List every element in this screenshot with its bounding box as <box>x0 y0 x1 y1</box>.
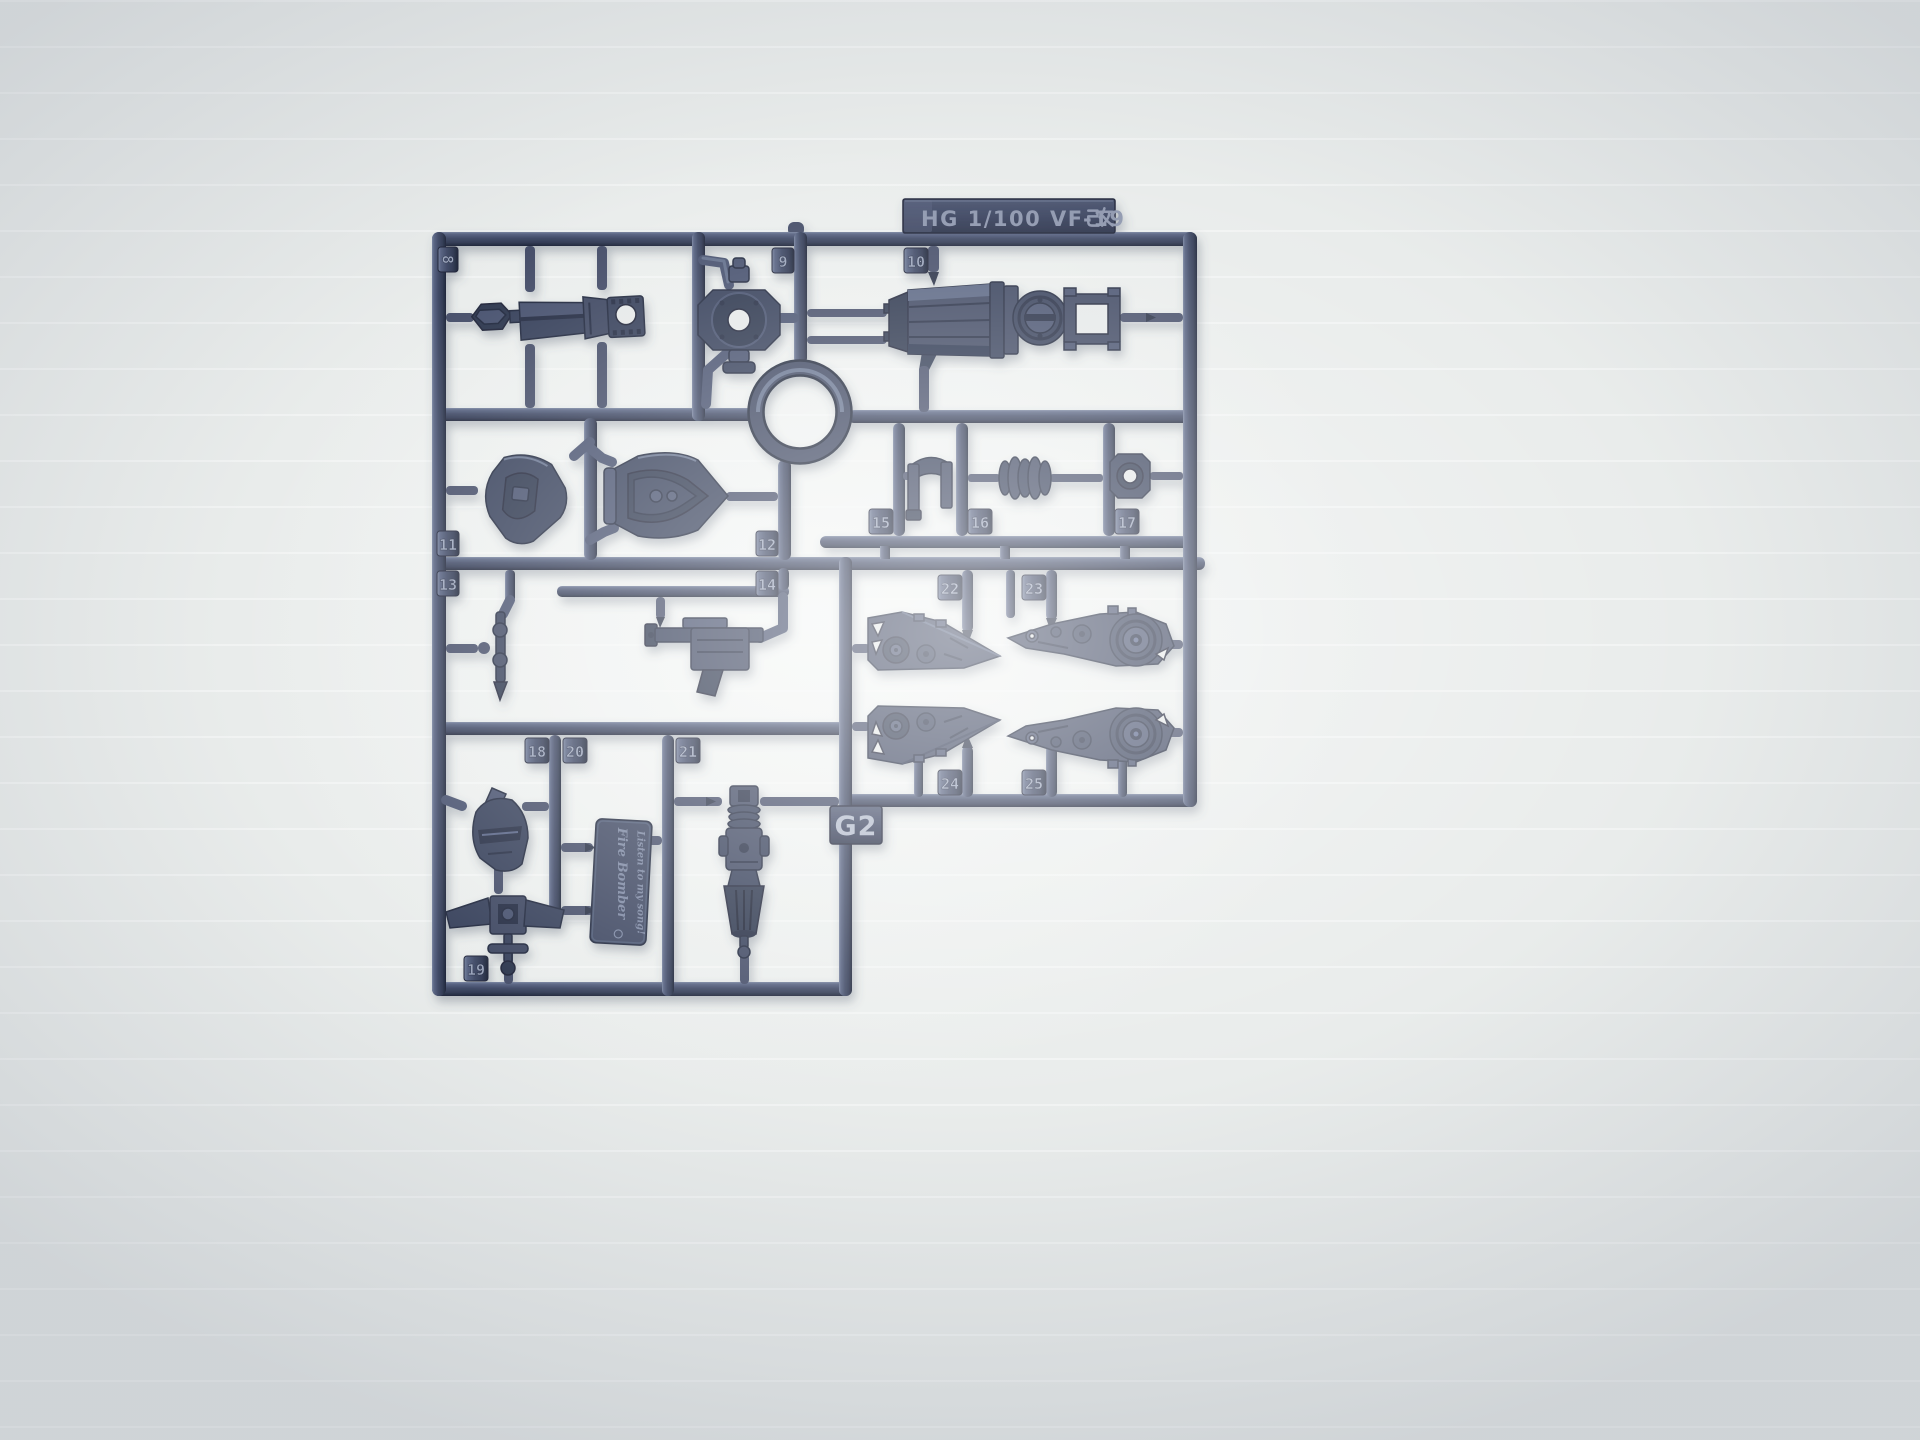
gate-stub <box>807 336 887 344</box>
gate-stub <box>446 644 478 653</box>
part-tag-22: 22 <box>938 575 962 600</box>
svg-text:8: 8 <box>439 255 457 264</box>
title-plate: HG 1/100 VF-19 <box>903 199 1125 233</box>
svg-text:11: 11 <box>439 536 457 554</box>
gate-stub <box>928 246 939 272</box>
gate-stub <box>597 342 607 408</box>
gate-stub <box>919 366 929 412</box>
svg-text:18: 18 <box>528 743 546 761</box>
part-tag-14: 14 <box>756 571 778 596</box>
svg-text:10: 10 <box>907 253 925 271</box>
runner-connector <box>1120 546 1130 559</box>
gate-stub <box>1050 474 1103 482</box>
gate-pin-cap <box>478 642 490 654</box>
part-tag-17: 17 <box>1115 509 1139 534</box>
gate-elbow <box>446 800 462 806</box>
runner-bar-panel-bottom <box>845 794 1197 807</box>
part-tag-8: 8 <box>438 247 458 272</box>
part-tag-10: 10 <box>904 248 928 273</box>
runner-bar-v12 <box>662 735 674 996</box>
svg-text:16: 16 <box>971 514 989 532</box>
svg-text:21: 21 <box>679 743 697 761</box>
svg-text:17: 17 <box>1118 514 1136 532</box>
runner-bar-v3 <box>778 460 791 560</box>
svg-text:20: 20 <box>566 743 584 761</box>
runner-bar-lower-left <box>432 722 852 735</box>
svg-text:22: 22 <box>941 580 959 598</box>
part-tag-20: 20 <box>563 738 587 763</box>
svg-text:15: 15 <box>872 514 890 532</box>
part-tag-9: 9 <box>772 248 794 273</box>
part-tag-19: 19 <box>464 956 488 981</box>
part-tag-13: 13 <box>437 571 459 596</box>
logo-plate-script-line1: Fire Bomber <box>614 827 629 921</box>
part-tag-23: 23 <box>1022 575 1046 600</box>
svg-text:23: 23 <box>1025 580 1043 598</box>
gate-stub <box>522 802 549 811</box>
part-tag-25: 25 <box>1022 770 1046 795</box>
runner-bar-vsup <box>778 568 789 590</box>
runner-code-tag: G2 <box>830 806 882 844</box>
part-tag-15: 15 <box>869 509 893 534</box>
gate-stub <box>525 344 535 408</box>
part-bellows-joint <box>999 457 1051 499</box>
gate-stub <box>726 492 778 501</box>
runner-bar-bottom <box>432 982 852 996</box>
part-tag-12: 12 <box>756 531 778 556</box>
runner-bar-v9 <box>839 557 852 996</box>
svg-text:12: 12 <box>758 536 776 554</box>
gate-stub <box>597 246 607 290</box>
gate-stub <box>807 309 887 317</box>
gate-stub <box>1150 472 1183 480</box>
runner-code-text: G2 <box>835 811 878 842</box>
runner-bar-mid-right <box>848 410 1197 423</box>
part-tag-18: 18 <box>525 738 549 763</box>
runner-bar-v6 <box>893 423 905 536</box>
gate-stub <box>968 474 1000 482</box>
part-ball-pin <box>493 612 507 700</box>
part-logo-plate: Fire Bomber Listen to my song! <box>590 819 652 946</box>
runner-bar-v7 <box>956 423 968 536</box>
runner-bar-left-edge <box>432 232 446 996</box>
runner-connector <box>880 546 890 559</box>
runner-bar-center <box>432 557 1205 570</box>
svg-text:13: 13 <box>439 576 457 594</box>
gate-bar-24 <box>962 746 973 797</box>
part-tag-11: 11 <box>437 531 459 556</box>
gate-stub <box>760 797 839 806</box>
svg-text:9: 9 <box>778 253 787 271</box>
part-tag-24: 24 <box>938 770 962 795</box>
gate-stub <box>656 597 665 619</box>
runner-bar-right-edge <box>1183 232 1197 807</box>
runner-connector <box>1000 546 1010 559</box>
sprue-photo: Fire Bomber Listen to my song! <box>0 0 1920 1440</box>
runner-bar-top <box>432 232 1197 246</box>
svg-text:24: 24 <box>941 775 959 793</box>
part-tag-21: 21 <box>676 738 700 763</box>
svg-text:25: 25 <box>1025 775 1043 793</box>
part-collar-ring <box>1110 454 1150 498</box>
runner-bar-v11 <box>549 735 561 918</box>
gate-stub <box>446 313 474 322</box>
svg-text:19: 19 <box>467 961 485 979</box>
svg-text:14: 14 <box>758 576 776 594</box>
runner-bar-v2 <box>794 232 807 364</box>
gate-bar-23 <box>1046 570 1057 620</box>
runner-subrail <box>557 586 789 597</box>
gate-stub <box>446 486 478 495</box>
lightbox-glow <box>255 140 1375 1100</box>
logo-plate-script-line2: Listen to my song! <box>635 830 646 935</box>
gate-stub <box>525 246 535 292</box>
gate-bar-22 <box>962 570 973 632</box>
gate-bar-23b <box>1006 570 1015 618</box>
part-tag-16: 16 <box>968 509 992 534</box>
